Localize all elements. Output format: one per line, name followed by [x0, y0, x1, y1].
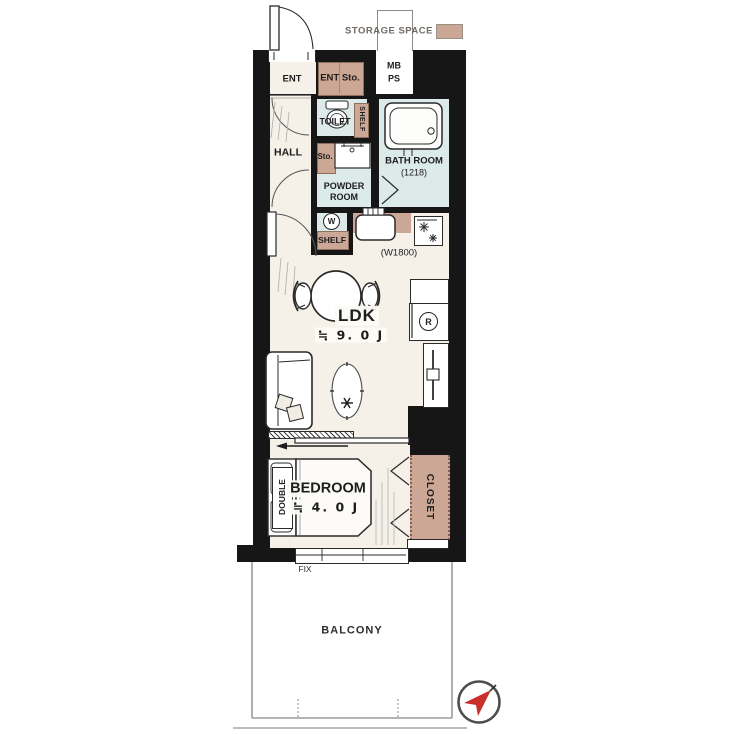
kitchen-width-label: (W1800) [381, 247, 417, 258]
stove [414, 216, 443, 246]
room-label-ldk: LDK [335, 306, 379, 326]
floor-plan: STORAGE SPACE [0, 0, 734, 734]
room-label-mb: MB [387, 61, 401, 72]
bed-type-label: DOUBLE [277, 479, 287, 515]
room-bath-floor [379, 99, 449, 207]
counter-upper-box [410, 279, 449, 305]
sliding-door-track [268, 431, 354, 439]
kitchen-shelf-label: SHELF [318, 235, 346, 245]
fridge-icon: R [419, 312, 438, 331]
wall-ldk-bedroom-right [408, 406, 449, 445]
closet-label: CLOSET [423, 474, 435, 521]
legend-storage-swatch [436, 24, 463, 39]
balcony-outline [252, 562, 452, 718]
kitchen-counter [353, 213, 411, 233]
legend-storage-space-label: STORAGE SPACE [345, 25, 433, 36]
washer-icon: W [323, 213, 340, 230]
closet-window-sill [407, 539, 449, 549]
toilet-shelf-label: SHELF [357, 106, 365, 131]
ldk-size-label: ≒ 9. 0 J [315, 328, 387, 343]
room-label-sto: Sto. [317, 152, 332, 162]
north-arrow-icon [459, 682, 500, 723]
room-label-ps: PS [388, 74, 400, 85]
balcony-railing-ticks [298, 699, 398, 718]
bedroom-size-label: ≒ 4. 0 J [290, 500, 362, 515]
room-label-bedroom: BEDROOM [287, 480, 369, 497]
room-label-toilet: TOILET [319, 117, 350, 128]
room-label-ent: ENT [283, 73, 302, 84]
room-label-bath-size: (1218) [401, 168, 427, 179]
room-label-bath: BATH ROOM [385, 155, 443, 166]
wall-foot-left [237, 545, 255, 562]
room-hall-floor [270, 95, 311, 255]
room-label-ent-storage: ENT Sto. [320, 72, 360, 83]
room-label-balcony: BALCONY [321, 624, 382, 637]
room-label-powder: POWDER ROOM [318, 181, 370, 203]
tall-cabinet [423, 343, 449, 408]
entrance-opening [268, 50, 316, 62]
mb-ps-box [376, 50, 413, 94]
bedroom-window [295, 548, 409, 564]
fix-window-label: FIX [298, 564, 311, 574]
room-label-hall: HALL [274, 147, 302, 160]
